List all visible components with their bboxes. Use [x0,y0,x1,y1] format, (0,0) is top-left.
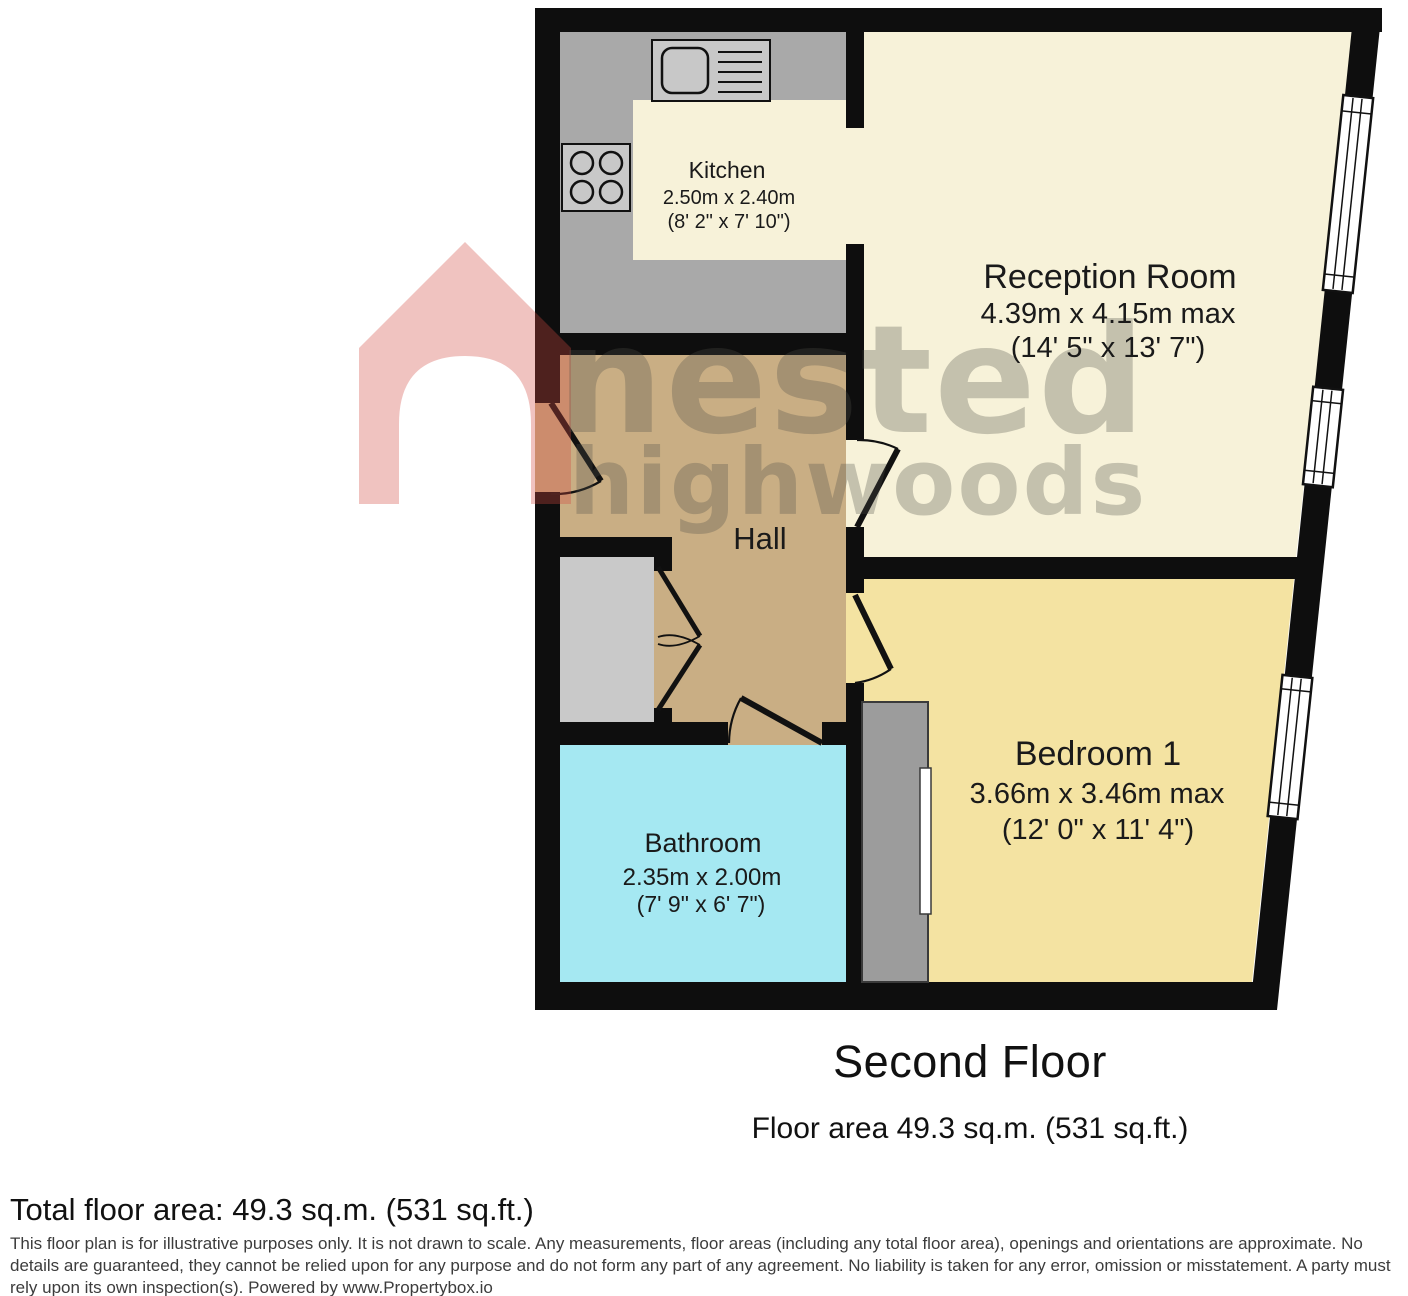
sink-icon [652,40,770,101]
svg-text:Hall: Hall [733,521,786,556]
wall-hall-bathroom-right [822,722,864,745]
wall-hall-bathroom-left [535,722,728,745]
svg-text:2.50m x 2.40m: 2.50m x 2.40m [663,187,795,209]
disclaimer-text: This floor plan is for illustrative purp… [10,1233,1402,1296]
svg-text:(14' 5" x 13' 7"): (14' 5" x 13' 7") [1011,332,1205,364]
svg-text:2.35m x 2.00m: 2.35m x 2.00m [623,864,782,891]
floorplan-svg: nested highwoods Kitchen 2.50m x 2.40m (… [0,0,1408,1030]
svg-text:Bedroom 1: Bedroom 1 [1015,735,1181,773]
wall-left-lower [535,492,560,1010]
svg-text:4.39m x 4.15m max: 4.39m x 4.15m max [981,298,1236,330]
wardrobe-door [920,768,931,914]
svg-text:Kitchen: Kitchen [689,157,766,183]
floorplan-page: nested highwoods Kitchen 2.50m x 2.40m (… [0,0,1408,1296]
floorplan-drawing: nested highwoods Kitchen 2.50m x 2.40m (… [0,0,1408,1030]
floor-area-label: Floor area 49.3 sq.m. (531 sq.ft.) [535,1112,1405,1146]
svg-text:(7' 9" x 6' 7"): (7' 9" x 6' 7") [637,891,766,917]
wall-reception-bedroom [846,557,1301,579]
wall-bottom [535,982,1277,1010]
closet-floor [560,557,654,722]
floor-title: Second Floor [535,1036,1405,1088]
svg-text:Bathroom: Bathroom [644,828,761,858]
watermark-line2: highwoods [569,429,1147,536]
svg-text:(8' 2" x 7' 10"): (8' 2" x 7' 10") [668,211,791,233]
bathroom-label: Bathroom 2.35m x 2.00m (7' 9" x 6' 7") [623,828,782,917]
svg-text:3.66m x 3.46m max: 3.66m x 3.46m max [970,778,1225,810]
wall-closet-top [535,537,672,557]
hob-icon [562,144,630,211]
wall-closet-stub-bottom [654,708,672,722]
svg-text:(12' 0" x 11' 4"): (12' 0" x 11' 4") [1002,814,1194,846]
wall-top [535,8,1382,32]
hall-label: Hall [733,521,786,556]
wardrobe [862,702,931,982]
total-floor-area-label: Total floor area: 49.3 sq.m. (531 sq.ft.… [10,1192,534,1228]
svg-text:Reception Room: Reception Room [983,258,1236,296]
reception-room-label: Reception Room 4.39m x 4.15m max (14' 5"… [981,258,1237,364]
wall-kitchen-reception-stub [846,32,864,128]
